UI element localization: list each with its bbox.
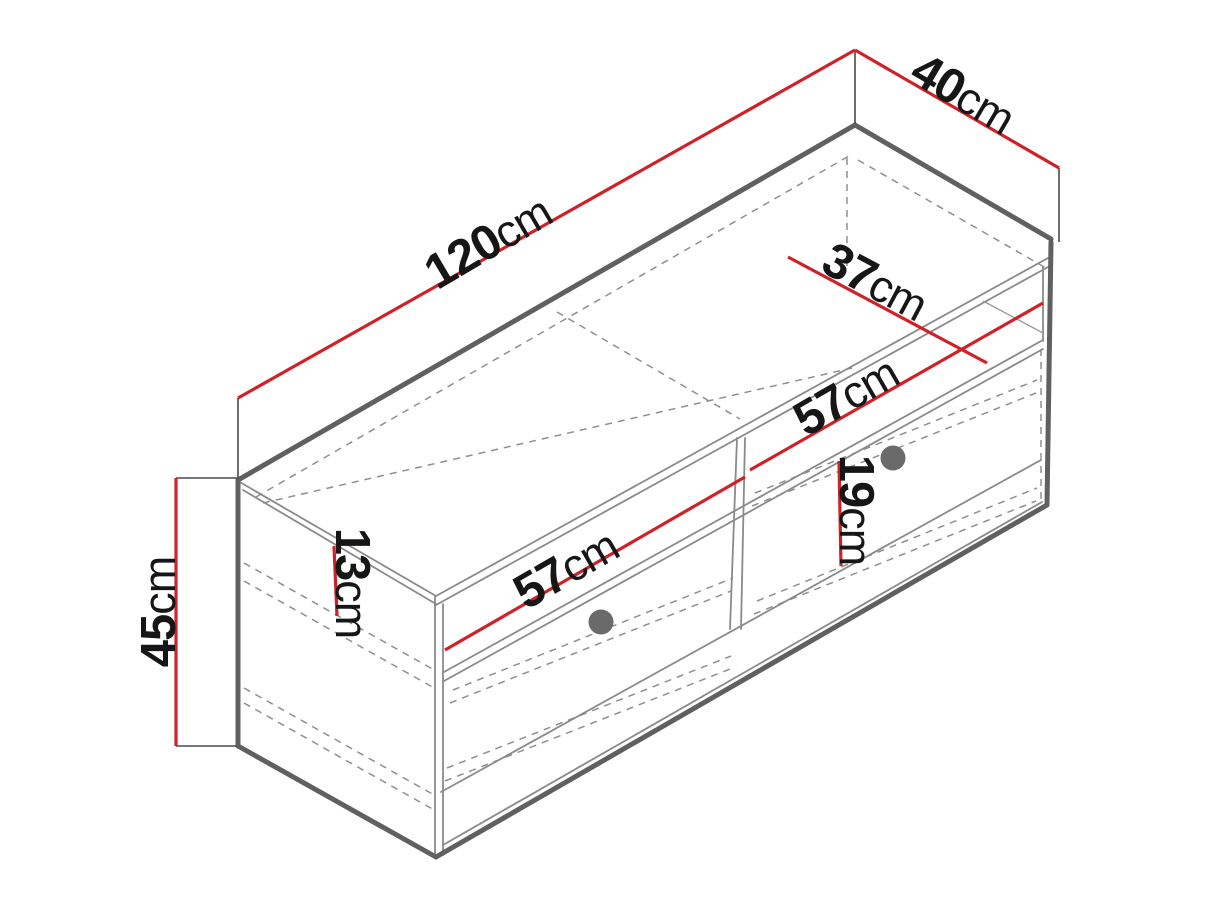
top-inner-back-right-hidden-edge — [858, 160, 1046, 268]
right-drawer-hidden-edge — [754, 501, 1036, 614]
furniture-dimension-diagram: 120cm 40cm 45cm 37cm 57cm 57cm — [0, 0, 1214, 910]
top-inner-back-left-hidden-edge — [256, 156, 849, 497]
side-panel-bottom-hidden-edge — [244, 688, 436, 796]
dimension-drawer-height: 19cm — [829, 455, 883, 566]
bottom-left-edge — [238, 746, 436, 857]
right-drawer-knob — [881, 446, 906, 471]
divider-top-hidden-edge — [557, 312, 740, 419]
shelf-divider-left-edge — [730, 438, 737, 629]
dimension-inner-depth: 37cm — [788, 232, 987, 363]
dimension-label-right-opening: 57cm — [785, 345, 908, 447]
dimension-label-depth: 40cm — [902, 43, 1025, 146]
left-drawer-hidden-edge — [445, 669, 730, 781]
left-drawer-hidden-edge — [450, 591, 731, 703]
dimension-label-niche-height: 13cm — [325, 528, 379, 639]
dimension-label-inner-depth: 37cm — [814, 232, 937, 332]
top-back-left-edge — [238, 125, 855, 480]
back-panel-hidden-edge — [263, 368, 852, 503]
bottom-front-edge — [436, 505, 1047, 857]
shelf-divider-right-edge — [741, 438, 745, 629]
left-drawer-knob — [589, 610, 614, 635]
cabinet-outline — [238, 125, 1051, 857]
dimension-label-height: 45cm — [132, 557, 186, 668]
dimension-label-drawer-height: 19cm — [829, 455, 883, 566]
hidden-edges — [244, 156, 1046, 811]
left-drawer-hidden-edge — [453, 578, 733, 690]
diagram-canvas: 120cm 40cm 45cm 37cm 57cm 57cm — [0, 0, 1214, 910]
dimension-width: 120cm — [238, 50, 855, 479]
dimension-label-width: 120cm — [415, 184, 560, 300]
drawer-bottom-edge — [441, 460, 1041, 792]
dimension-height: 45cm — [132, 478, 237, 746]
dimension-right-opening: 57cm — [750, 303, 1043, 470]
front-right-vertical-edge — [1047, 242, 1051, 505]
side-panel-bottom-hidden-edge — [244, 703, 436, 811]
niche-inner-corner-edge — [983, 301, 1043, 333]
dimension-niche-height: 13cm — [325, 528, 379, 639]
top-back-right-edge — [855, 125, 1051, 239]
